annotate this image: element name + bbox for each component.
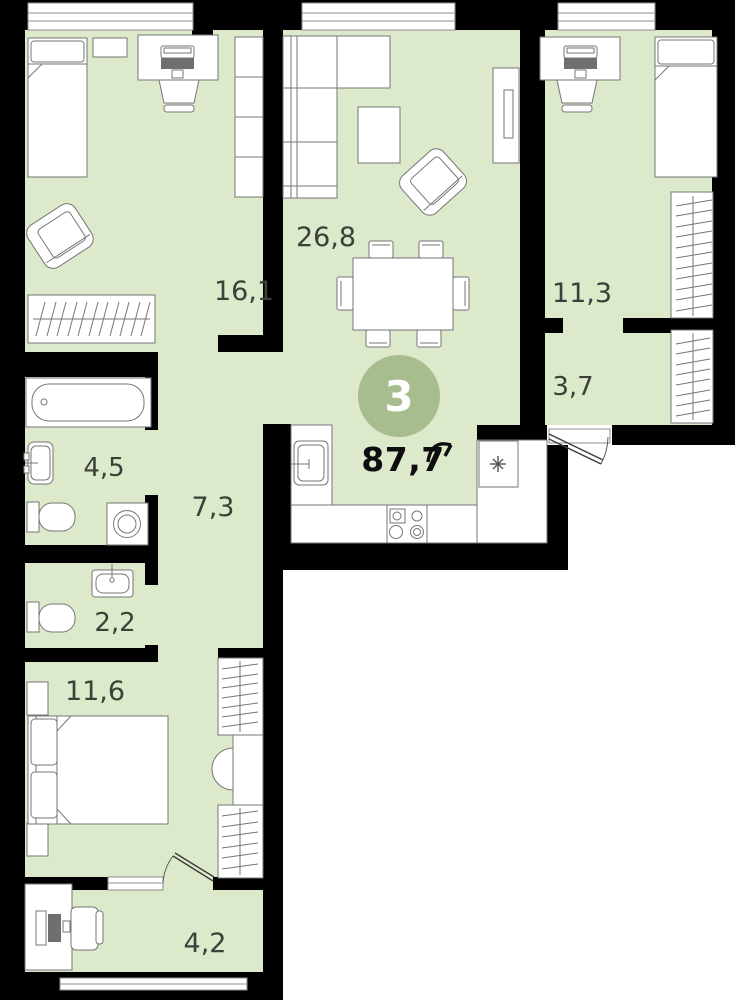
area-bedroom-top-right: 11,3 [552, 278, 612, 309]
area-loggia: 4,2 [184, 928, 227, 959]
area-corridor: 7,3 [192, 492, 235, 523]
double-bed [28, 716, 168, 824]
hanger-wardrobe [671, 330, 713, 423]
wall-bedroom2-bottom-a [545, 318, 563, 333]
single-bed [655, 37, 717, 177]
wall-wc-right-a [145, 563, 158, 585]
toilet [27, 602, 75, 632]
dining-chair [419, 241, 443, 258]
tv-stand [493, 68, 519, 163]
wall-kitchen-left [263, 424, 291, 543]
single-bed [28, 38, 87, 177]
floor-wc-doorway [145, 585, 158, 645]
wall-kitchen-bottom [263, 543, 568, 570]
area-hallway: 3,7 [552, 372, 593, 402]
wall-bathroom-top [0, 352, 158, 377]
floor-passage [263, 350, 291, 425]
hanger-wardrobe [671, 192, 713, 318]
room-count-label: 3 [384, 372, 413, 421]
toilet [27, 502, 75, 532]
window-living [302, 3, 455, 30]
entrance-threshold [549, 429, 610, 443]
wall-bathroom-wc [0, 545, 158, 563]
dining-chair [369, 241, 393, 258]
wall-stub-bedroom1 [218, 335, 263, 352]
area-bedroom-bottom: 11,6 [65, 676, 125, 707]
dining-chair [453, 277, 469, 310]
stove [387, 505, 427, 543]
floor-bedroom-doorway [158, 648, 218, 662]
dining-chair [366, 330, 390, 347]
desk-chair [557, 80, 597, 112]
bathtub [26, 378, 151, 427]
dining-chair [417, 330, 441, 347]
window-loggia [60, 978, 247, 990]
wall-bedroom3-top-a [0, 648, 158, 662]
floor-loggia-doorway [163, 877, 213, 890]
hanger-wardrobe [218, 658, 263, 735]
dining-chair [337, 277, 353, 310]
nightstand [27, 823, 48, 856]
hanger-wardrobe [218, 805, 263, 878]
area-living: 26,8 [296, 222, 356, 253]
floor-bathroom-doorway [147, 430, 158, 495]
wall-bedroom3-bottom-b [213, 877, 283, 890]
window-bedroom1 [28, 3, 193, 30]
floor-plan-svg: 3 87,7 16,1 26,8 11,3 3,7 4,5 7,3 2,2 11… [0, 0, 735, 1000]
window-balcony-block [108, 877, 163, 890]
desk [25, 884, 72, 970]
total-area-label: 87,7 [361, 440, 444, 479]
desk [138, 35, 218, 80]
wall-living-bedroom2 [520, 30, 545, 445]
wall-hallway-bottom [612, 425, 735, 445]
fridge [479, 441, 518, 487]
area-bedroom-top-left: 16,1 [214, 276, 274, 307]
floor-plan: 3 87,7 16,1 26,8 11,3 3,7 4,5 7,3 2,2 11… [0, 0, 735, 1000]
shelf [93, 38, 127, 57]
washing-machine [107, 503, 148, 545]
area-wc: 2,2 [94, 608, 135, 638]
hanger-wardrobe [28, 295, 155, 343]
coffee-table [358, 107, 400, 163]
desk-chair [159, 80, 199, 112]
window-bedroom2 [558, 3, 655, 30]
wall-right-lower [263, 543, 283, 1000]
kitchen-sink [291, 441, 328, 485]
wardrobe-shelving [235, 37, 263, 197]
wall-left [0, 0, 25, 1000]
area-bathroom: 4,5 [83, 453, 124, 483]
washbasin [24, 442, 53, 484]
desk-chair [71, 907, 103, 950]
nightstand [27, 682, 48, 715]
desk [540, 37, 620, 80]
